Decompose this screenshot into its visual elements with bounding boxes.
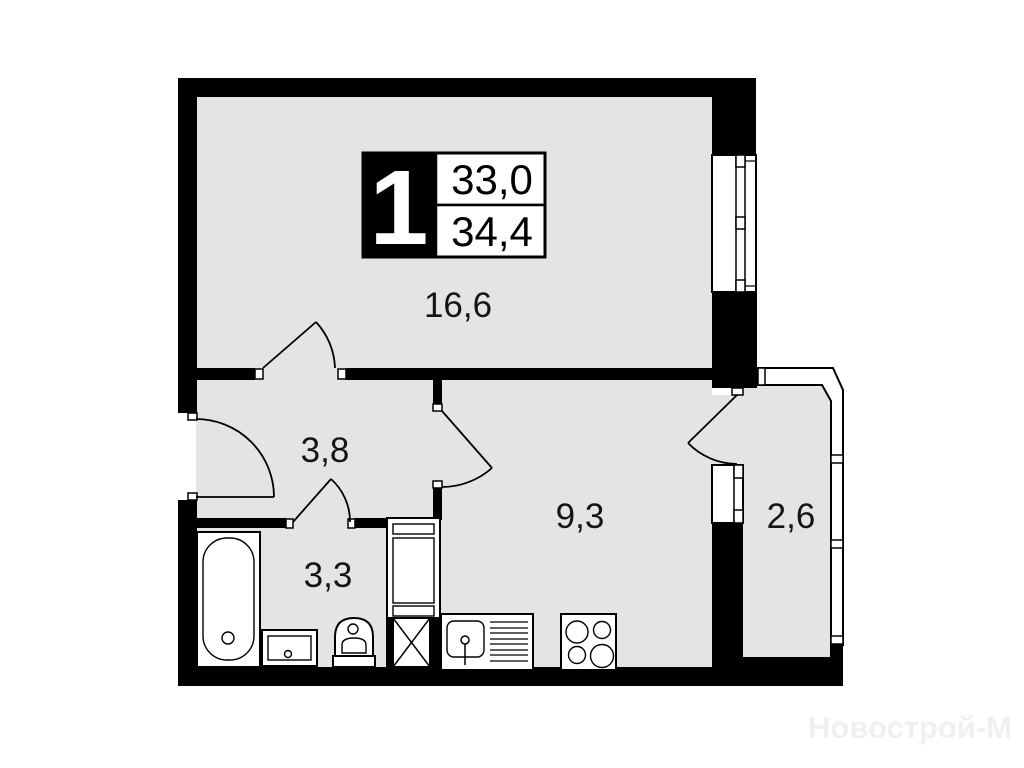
room-label-living: 16,6 (424, 286, 492, 325)
room-label-bathroom: 3,3 (304, 556, 353, 595)
toilet-icon (333, 618, 375, 667)
kitchen-doorway-floor (433, 411, 442, 481)
bathtub-icon (197, 532, 260, 667)
room-label-kitchen: 9,3 (556, 497, 605, 536)
entrance-jamb-top (188, 413, 197, 420)
room-label-balcony: 2,6 (767, 497, 816, 536)
partition-living-hall (196, 368, 255, 380)
living-door-jamb-right (338, 369, 346, 379)
kitchen-sink-icon (441, 614, 533, 670)
badge-area-bottom: 34,4 (451, 208, 533, 255)
bathroom-door-jamb-right (348, 519, 355, 528)
living-room-window (712, 155, 756, 292)
wall-left-lower (178, 500, 197, 686)
entrance-jamb-bottom (188, 493, 197, 500)
living-door-jamb-left (255, 369, 263, 379)
wall-left-upper (178, 78, 197, 413)
wall-balcony-bottom (712, 657, 831, 686)
wall-right-below-window (712, 292, 757, 388)
apartment-badge: 1 33,0 34,4 (363, 149, 545, 267)
badge-area-top: 33,0 (451, 156, 533, 203)
duct-right-pier (430, 618, 440, 667)
partition-bathroom-right (355, 518, 387, 528)
wall-right-above-window (712, 78, 756, 155)
wall-top (178, 78, 756, 97)
kitchen-door-jamb-bottom (433, 481, 442, 488)
partition-hall-kitchen-lower (433, 488, 442, 520)
room-label-hallway: 3,8 (301, 431, 350, 470)
watermark: Новострой-М (808, 710, 1012, 745)
bathroom-door-jamb-left (286, 519, 293, 528)
balcony-door-jamb (732, 388, 743, 395)
wall-balcony-right-bottom (830, 645, 843, 686)
bathroom-doorway-floor (293, 518, 348, 528)
wall-kitchen-balcony-lower (712, 523, 743, 657)
stove-icon (561, 614, 616, 670)
living-doorway-floor (263, 368, 338, 380)
cabinet-icon (387, 518, 440, 618)
kitchen-door-jamb-top (433, 404, 442, 411)
partition-hall-kitchen-upper (433, 380, 442, 404)
vent-duct-icon (393, 618, 430, 667)
duct-left-pier (386, 618, 393, 667)
floor-plan-page: 1 33,0 34,4 16,6 3,8 3,3 9,3 2,6 Новостр… (0, 0, 1024, 768)
floor-plan-canvas: 1 33,0 34,4 16,6 3,8 3,3 9,3 2,6 Новостр… (0, 0, 1024, 768)
kitchen-window (712, 465, 743, 523)
washbasin-icon (262, 630, 317, 666)
partition-living-kitchen (346, 368, 712, 380)
badge-room-count: 1 (370, 149, 429, 267)
partition-bathroom-left (196, 518, 286, 528)
